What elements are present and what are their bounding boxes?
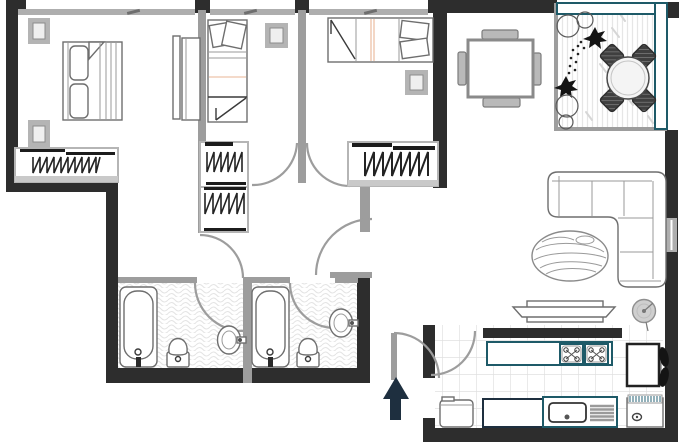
floor-plan-canvas	[0, 0, 680, 442]
bathtub	[120, 287, 157, 367]
door-leaf	[330, 272, 372, 278]
wall	[252, 277, 290, 283]
wall	[6, 182, 118, 192]
toilet-bowl	[169, 339, 187, 356]
door-arc-bedroom-3	[307, 143, 350, 186]
pillow	[70, 84, 88, 118]
wall	[106, 182, 118, 383]
door-arc-corridor	[200, 235, 243, 278]
toilet	[167, 339, 189, 368]
wall	[106, 368, 370, 383]
wall	[360, 185, 370, 232]
dining-table	[468, 40, 533, 97]
toilet	[297, 339, 319, 368]
nightstand	[265, 23, 288, 48]
bathtub-tap	[136, 357, 141, 367]
single-bed	[208, 20, 247, 122]
window	[18, 9, 195, 15]
kitchen-counter	[483, 399, 543, 427]
dining-chair	[482, 30, 518, 39]
nightstand	[405, 70, 428, 95]
balcony-window-frame	[655, 3, 667, 129]
dining-chair	[483, 98, 520, 107]
entrance-door-leaf	[391, 333, 397, 380]
floor-plan-drawing	[0, 0, 680, 442]
bedroom-1	[15, 18, 122, 182]
closet-with-hangers	[200, 187, 248, 232]
bathtub-tap	[268, 357, 273, 367]
wall	[483, 328, 622, 338]
bedroom-3	[328, 18, 438, 186]
door-arc-bedroom-2	[252, 143, 297, 185]
nightstand	[28, 18, 50, 44]
tv-console	[513, 301, 615, 322]
wall	[357, 278, 370, 383]
fridge	[627, 344, 659, 386]
wall	[298, 10, 306, 183]
balcony-table	[607, 57, 649, 99]
toilet-bowl	[299, 339, 317, 356]
dining-chair	[458, 52, 466, 85]
base-cabinet	[440, 397, 473, 427]
dining-area	[458, 30, 541, 107]
closet-with-hangers	[348, 142, 438, 186]
entrance	[383, 377, 409, 420]
nightstand	[28, 120, 50, 147]
kitchen-sink	[543, 397, 617, 427]
pillow	[400, 38, 429, 59]
pillow	[70, 46, 88, 80]
living-area	[513, 172, 666, 331]
double-bed	[63, 42, 122, 120]
stove-burners	[560, 344, 608, 364]
washing-machine	[627, 395, 663, 427]
wall	[665, 130, 678, 442]
single-bed	[328, 18, 433, 62]
bedroom-2	[173, 20, 288, 232]
wall	[118, 277, 197, 283]
closet-with-hangers	[15, 148, 118, 182]
oval-rug	[532, 231, 608, 281]
wall	[428, 0, 557, 13]
pillow	[222, 21, 247, 49]
wall	[423, 428, 678, 442]
balcony-window-frame	[557, 3, 666, 14]
wardrobe	[173, 36, 200, 120]
wall	[423, 325, 435, 378]
entrance-arrow	[383, 377, 409, 420]
closet-with-hangers	[200, 142, 248, 187]
bathtub	[252, 287, 289, 367]
wall	[243, 277, 252, 383]
pillow	[400, 20, 429, 40]
